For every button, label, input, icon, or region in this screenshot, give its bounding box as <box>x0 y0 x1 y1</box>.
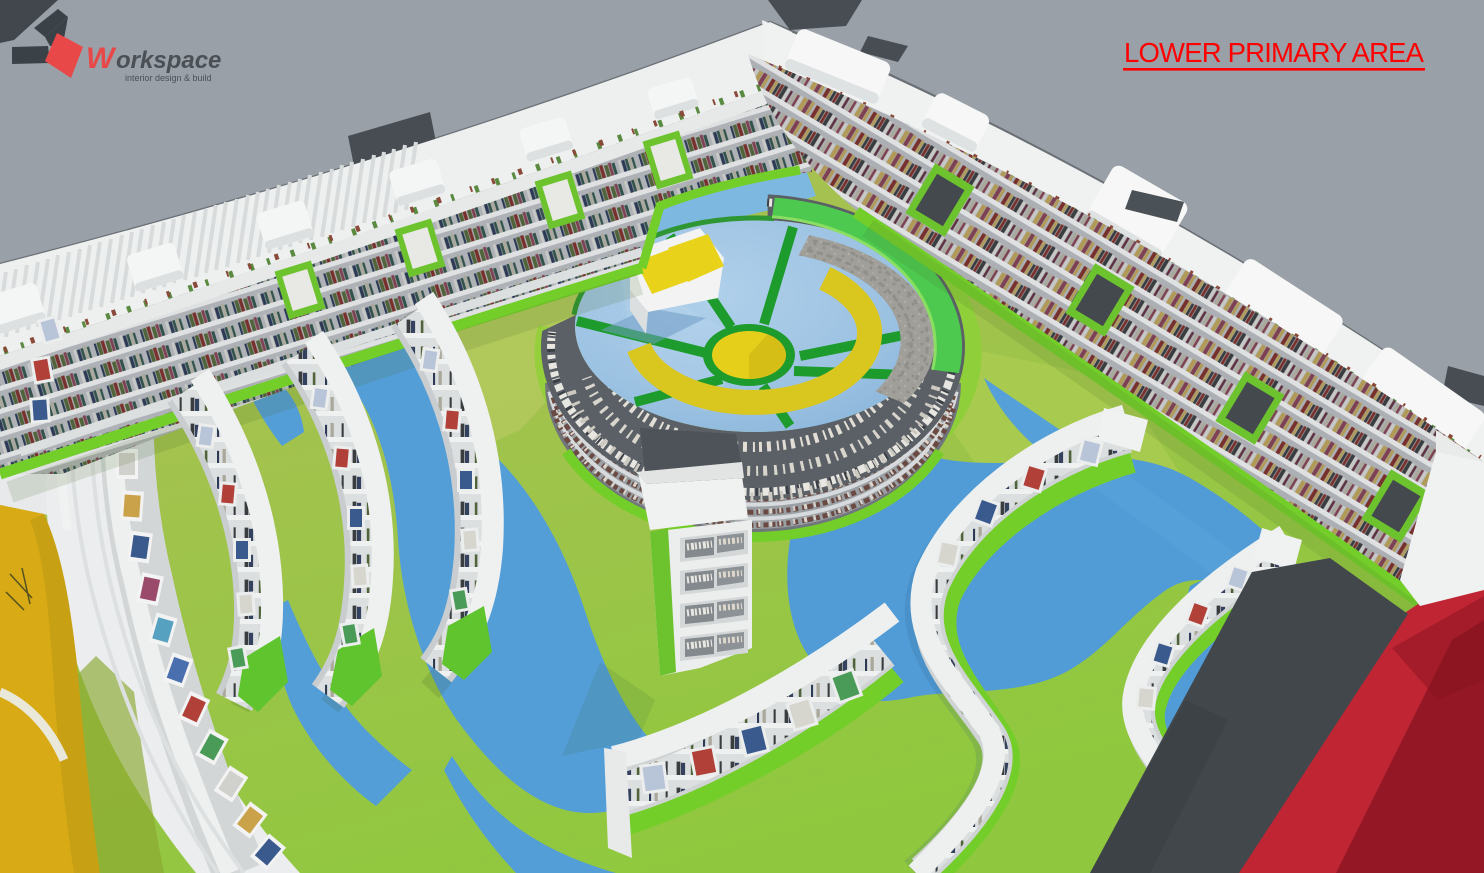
svg-text:orkspace: orkspace <box>116 47 221 74</box>
svg-text:LOWER PRIMARY AREA: LOWER PRIMARY AREA <box>1124 37 1425 68</box>
svg-text:interior design & build: interior design & build <box>125 73 212 83</box>
svg-text:W: W <box>86 42 117 75</box>
